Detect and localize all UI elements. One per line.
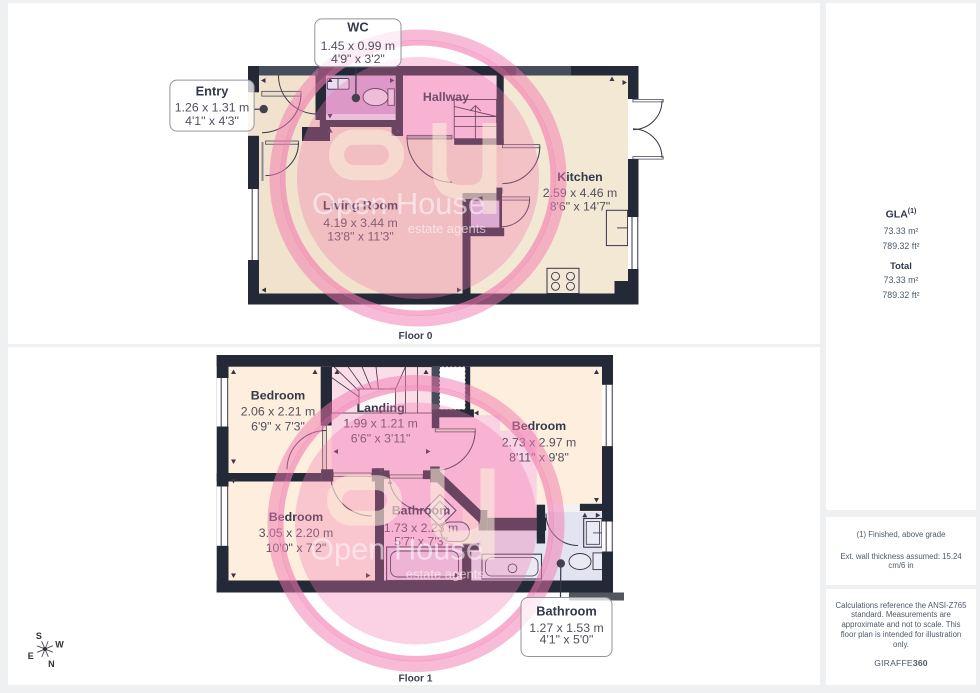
svg-text:4'9" x 3'2": 4'9" x 3'2" [331,52,385,66]
svg-text:Bathroom: Bathroom [536,603,596,618]
svg-text:S: S [36,631,42,641]
svg-text:W: W [55,639,64,649]
svg-text:Floor 0: Floor 0 [399,331,433,342]
svg-text:estate agents: estate agents [406,566,485,581]
svg-text:WC: WC [347,19,368,34]
svg-text:4'1" x 5'0": 4'1" x 5'0" [540,632,594,646]
svg-text:Open House: Open House [312,186,485,221]
svg-text:N: N [48,659,55,669]
svg-text:4'1" x 4'3": 4'1" x 4'3" [185,114,239,128]
svg-text:estate agents: estate agents [408,221,487,236]
svg-text:Open House: Open House [310,531,483,566]
svg-text:Bedroom: Bedroom [251,388,305,402]
svg-text:E: E [28,651,34,661]
svg-text:Floor 1: Floor 1 [399,673,433,684]
svg-text:1.26 x 1.31 m: 1.26 x 1.31 m [175,101,250,115]
svg-text:6'9" x 7'3": 6'9" x 7'3" [251,419,305,433]
svg-text:Entry: Entry [196,84,230,99]
svg-text:1.45 x 0.99 m: 1.45 x 0.99 m [321,39,396,53]
svg-text:2.06 x 2.21 m: 2.06 x 2.21 m [241,404,316,418]
